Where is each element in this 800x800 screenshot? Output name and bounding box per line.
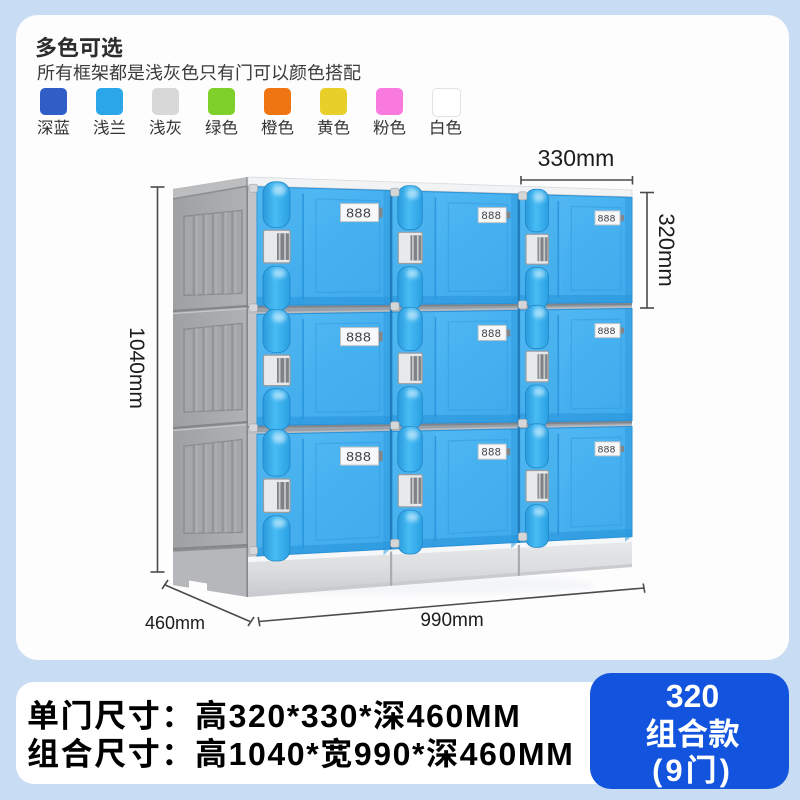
svg-text:888: 888 [597, 445, 615, 456]
svg-text:888: 888 [481, 211, 501, 223]
svg-text:888: 888 [346, 450, 371, 466]
svg-text:888: 888 [481, 448, 501, 460]
svg-text:888: 888 [346, 331, 371, 347]
svg-text:330mm: 330mm [538, 145, 615, 171]
svg-text:320mm: 320mm [654, 213, 679, 286]
svg-text:888: 888 [481, 329, 501, 341]
svg-text:888: 888 [346, 207, 371, 223]
svg-text:990mm: 990mm [420, 610, 483, 631]
svg-text:888: 888 [597, 327, 615, 338]
svg-text:888: 888 [597, 215, 615, 226]
svg-text:1040mm: 1040mm [125, 327, 148, 409]
svg-text:460mm: 460mm [145, 613, 205, 633]
